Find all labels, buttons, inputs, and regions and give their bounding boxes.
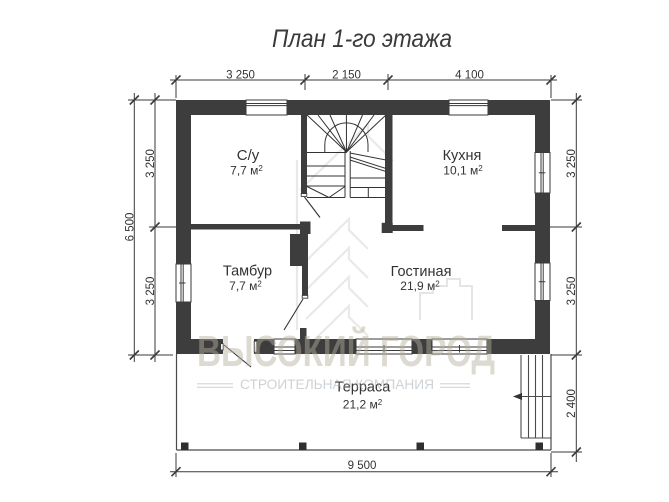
svg-text:6 500: 6 500 [125,213,137,242]
svg-text:Кухня: Кухня [443,148,482,164]
svg-text:ВЫСОКИЙ ГОРОД: ВЫСОКИЙ ГОРОД [197,325,495,376]
svg-text:3 250: 3 250 [566,277,578,306]
svg-text:3 250: 3 250 [566,149,578,178]
svg-text:Тамбур: Тамбур [223,264,272,280]
svg-text:21,2 м2: 21,2 м2 [343,398,383,412]
svg-text:2 150: 2 150 [332,70,361,82]
svg-text:С/у: С/у [237,147,260,164]
svg-text:СТРОИТЕЛЬНАЯ КОМПАНИЯ: СТРОИТЕЛЬНАЯ КОМПАНИЯ [240,377,434,392]
svg-text:3 250: 3 250 [145,149,157,178]
svg-text:План 1-го этажа: План 1-го этажа [272,25,452,53]
svg-text:3 250: 3 250 [226,70,255,82]
svg-text:4 100: 4 100 [455,70,484,82]
svg-text:9 500: 9 500 [348,460,377,472]
svg-text:10,1 м2: 10,1 м2 [443,164,483,178]
svg-text:21,9 м2: 21,9 м2 [400,279,440,293]
svg-text:Гостиная: Гостиная [391,264,452,280]
svg-text:2 400: 2 400 [566,389,578,418]
svg-text:3 250: 3 250 [145,277,157,306]
